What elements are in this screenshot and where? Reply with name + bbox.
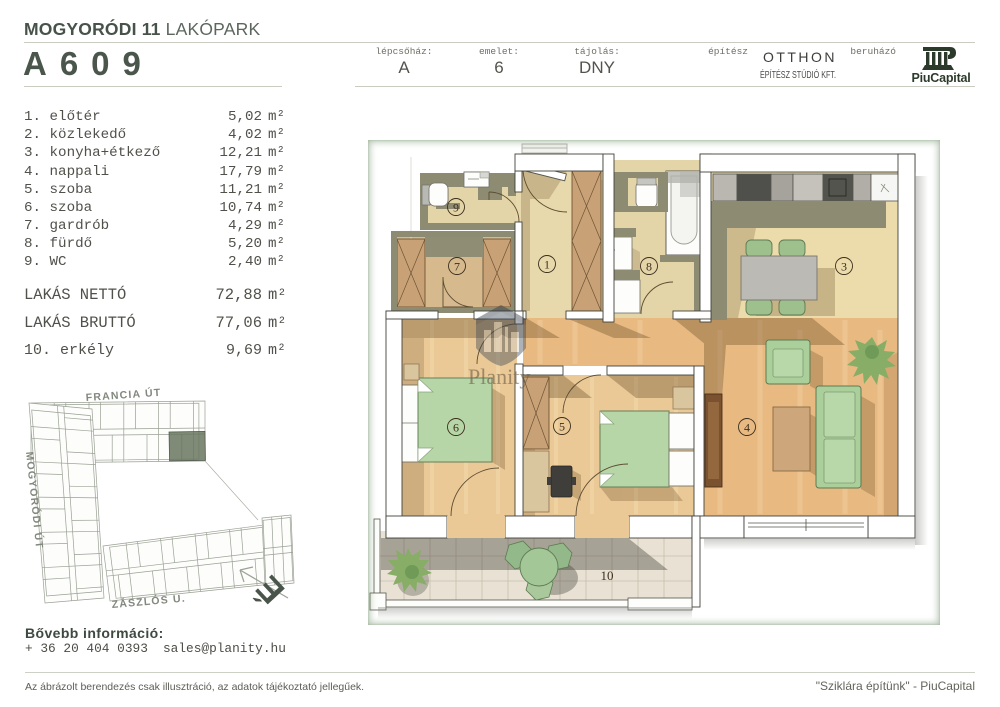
svg-text:FRANCIA ÚT: FRANCIA ÚT — [85, 386, 162, 404]
